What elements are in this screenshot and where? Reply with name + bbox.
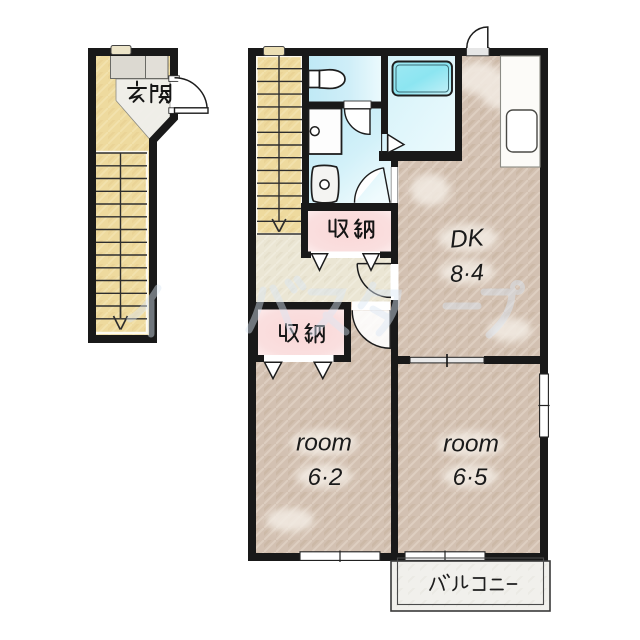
svg-text:room: room xyxy=(296,430,352,457)
svg-text:8·4: 8·4 xyxy=(449,259,485,287)
svg-text:6·5: 6·5 xyxy=(453,464,488,491)
svg-text:room: room xyxy=(443,431,499,458)
svg-text:6·2: 6·2 xyxy=(308,464,343,491)
svg-text:DK: DK xyxy=(449,224,486,253)
